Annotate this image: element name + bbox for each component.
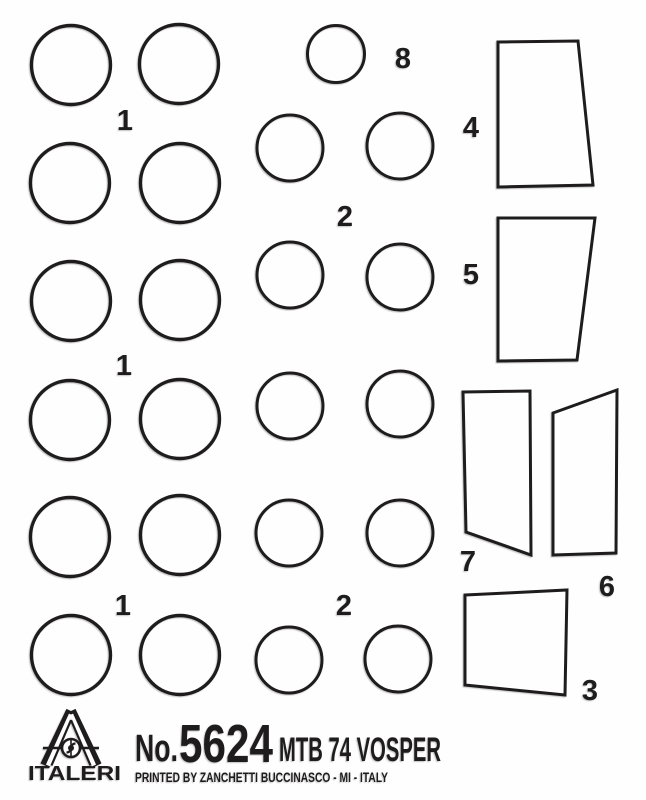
window-decal-part-5 bbox=[498, 218, 595, 361]
decal-sheet: 11122845763 ITALERINo.5624MTB 74 VOSPERP… bbox=[0, 0, 646, 800]
porthole-decal-part-2 bbox=[256, 627, 322, 693]
porthole-decal-part-1 bbox=[141, 496, 220, 575]
porthole-decal-part-1 bbox=[32, 26, 111, 105]
part-number-label-1: 1 bbox=[115, 590, 131, 622]
porthole-decal-part-1 bbox=[141, 261, 220, 340]
porthole-decal-part-1 bbox=[31, 498, 110, 577]
porthole-decal-part-2 bbox=[257, 242, 323, 308]
porthole-decal-part-2 bbox=[367, 244, 433, 310]
porthole-decal-part-8 bbox=[308, 26, 365, 83]
porthole-decal-part-2 bbox=[257, 373, 323, 439]
window-decal-part-4 bbox=[498, 41, 593, 187]
decal-sheet-canvas: 11122845763 ITALERINo.5624MTB 74 VOSPERP… bbox=[0, 0, 646, 800]
window-decal-part-6 bbox=[553, 390, 617, 555]
part-number-label-3: 3 bbox=[582, 675, 598, 707]
porthole-decal-part-1 bbox=[141, 380, 220, 459]
kit-number: 5624 bbox=[179, 714, 273, 774]
porthole-decal-part-2 bbox=[367, 500, 433, 566]
porthole-decal-part-2 bbox=[257, 115, 323, 181]
porthole-decal-part-1 bbox=[141, 144, 220, 223]
brand-wordmark: ITALERI bbox=[28, 763, 121, 785]
porthole-decal-part-2 bbox=[365, 626, 431, 692]
porthole-decal-part-1 bbox=[140, 25, 219, 104]
italeri-logo-icon bbox=[43, 711, 99, 766]
porthole-decal-part-1 bbox=[31, 381, 110, 460]
part-number-label-1: 1 bbox=[117, 105, 133, 137]
part-number-label-8: 8 bbox=[395, 43, 411, 75]
kit-number-prefix: No. bbox=[135, 728, 178, 770]
part-number-label-4: 4 bbox=[463, 112, 479, 144]
window-decal-part-7 bbox=[463, 391, 531, 555]
part-number-label-2: 2 bbox=[337, 201, 353, 233]
porthole-decal-part-2 bbox=[367, 113, 433, 179]
printed-line: PRINTED BY ZANCHETTI BUCCINASCO - MI - I… bbox=[135, 770, 388, 785]
window-decal-part-3 bbox=[465, 590, 567, 695]
kit-name: MTB 74 VOSPER bbox=[279, 731, 441, 769]
porthole-decal-part-1 bbox=[32, 616, 111, 695]
part-number-label-2: 2 bbox=[336, 590, 352, 622]
part-number-label-6: 6 bbox=[599, 571, 615, 603]
part-number-label-5: 5 bbox=[463, 259, 479, 291]
porthole-decal-part-1 bbox=[32, 262, 111, 341]
porthole-decal-part-1 bbox=[31, 144, 110, 223]
part-number-label-7: 7 bbox=[460, 546, 476, 578]
porthole-decal-part-1 bbox=[141, 616, 220, 695]
porthole-decal-part-2 bbox=[256, 500, 322, 566]
porthole-decal-part-2 bbox=[367, 371, 433, 437]
part-number-label-1: 1 bbox=[116, 350, 132, 382]
